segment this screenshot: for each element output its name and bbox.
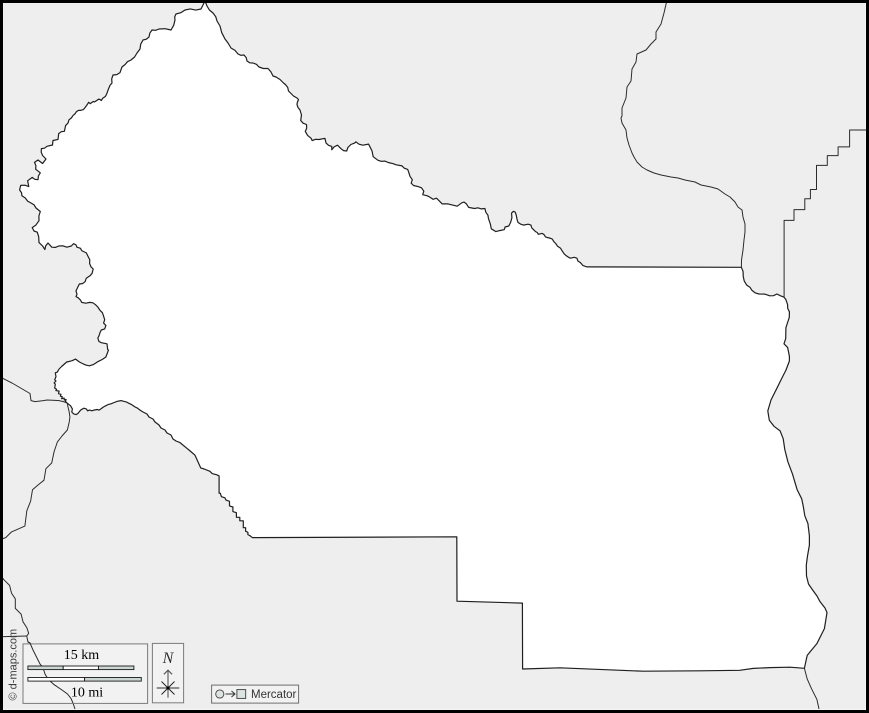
svg-text:10 mi: 10 mi	[71, 686, 103, 701]
svg-text:15 km: 15 km	[64, 648, 100, 663]
svg-text:© d-maps.com: © d-maps.com	[8, 629, 20, 701]
svg-text:N: N	[162, 650, 175, 667]
svg-text:Mercator: Mercator	[251, 689, 297, 701]
